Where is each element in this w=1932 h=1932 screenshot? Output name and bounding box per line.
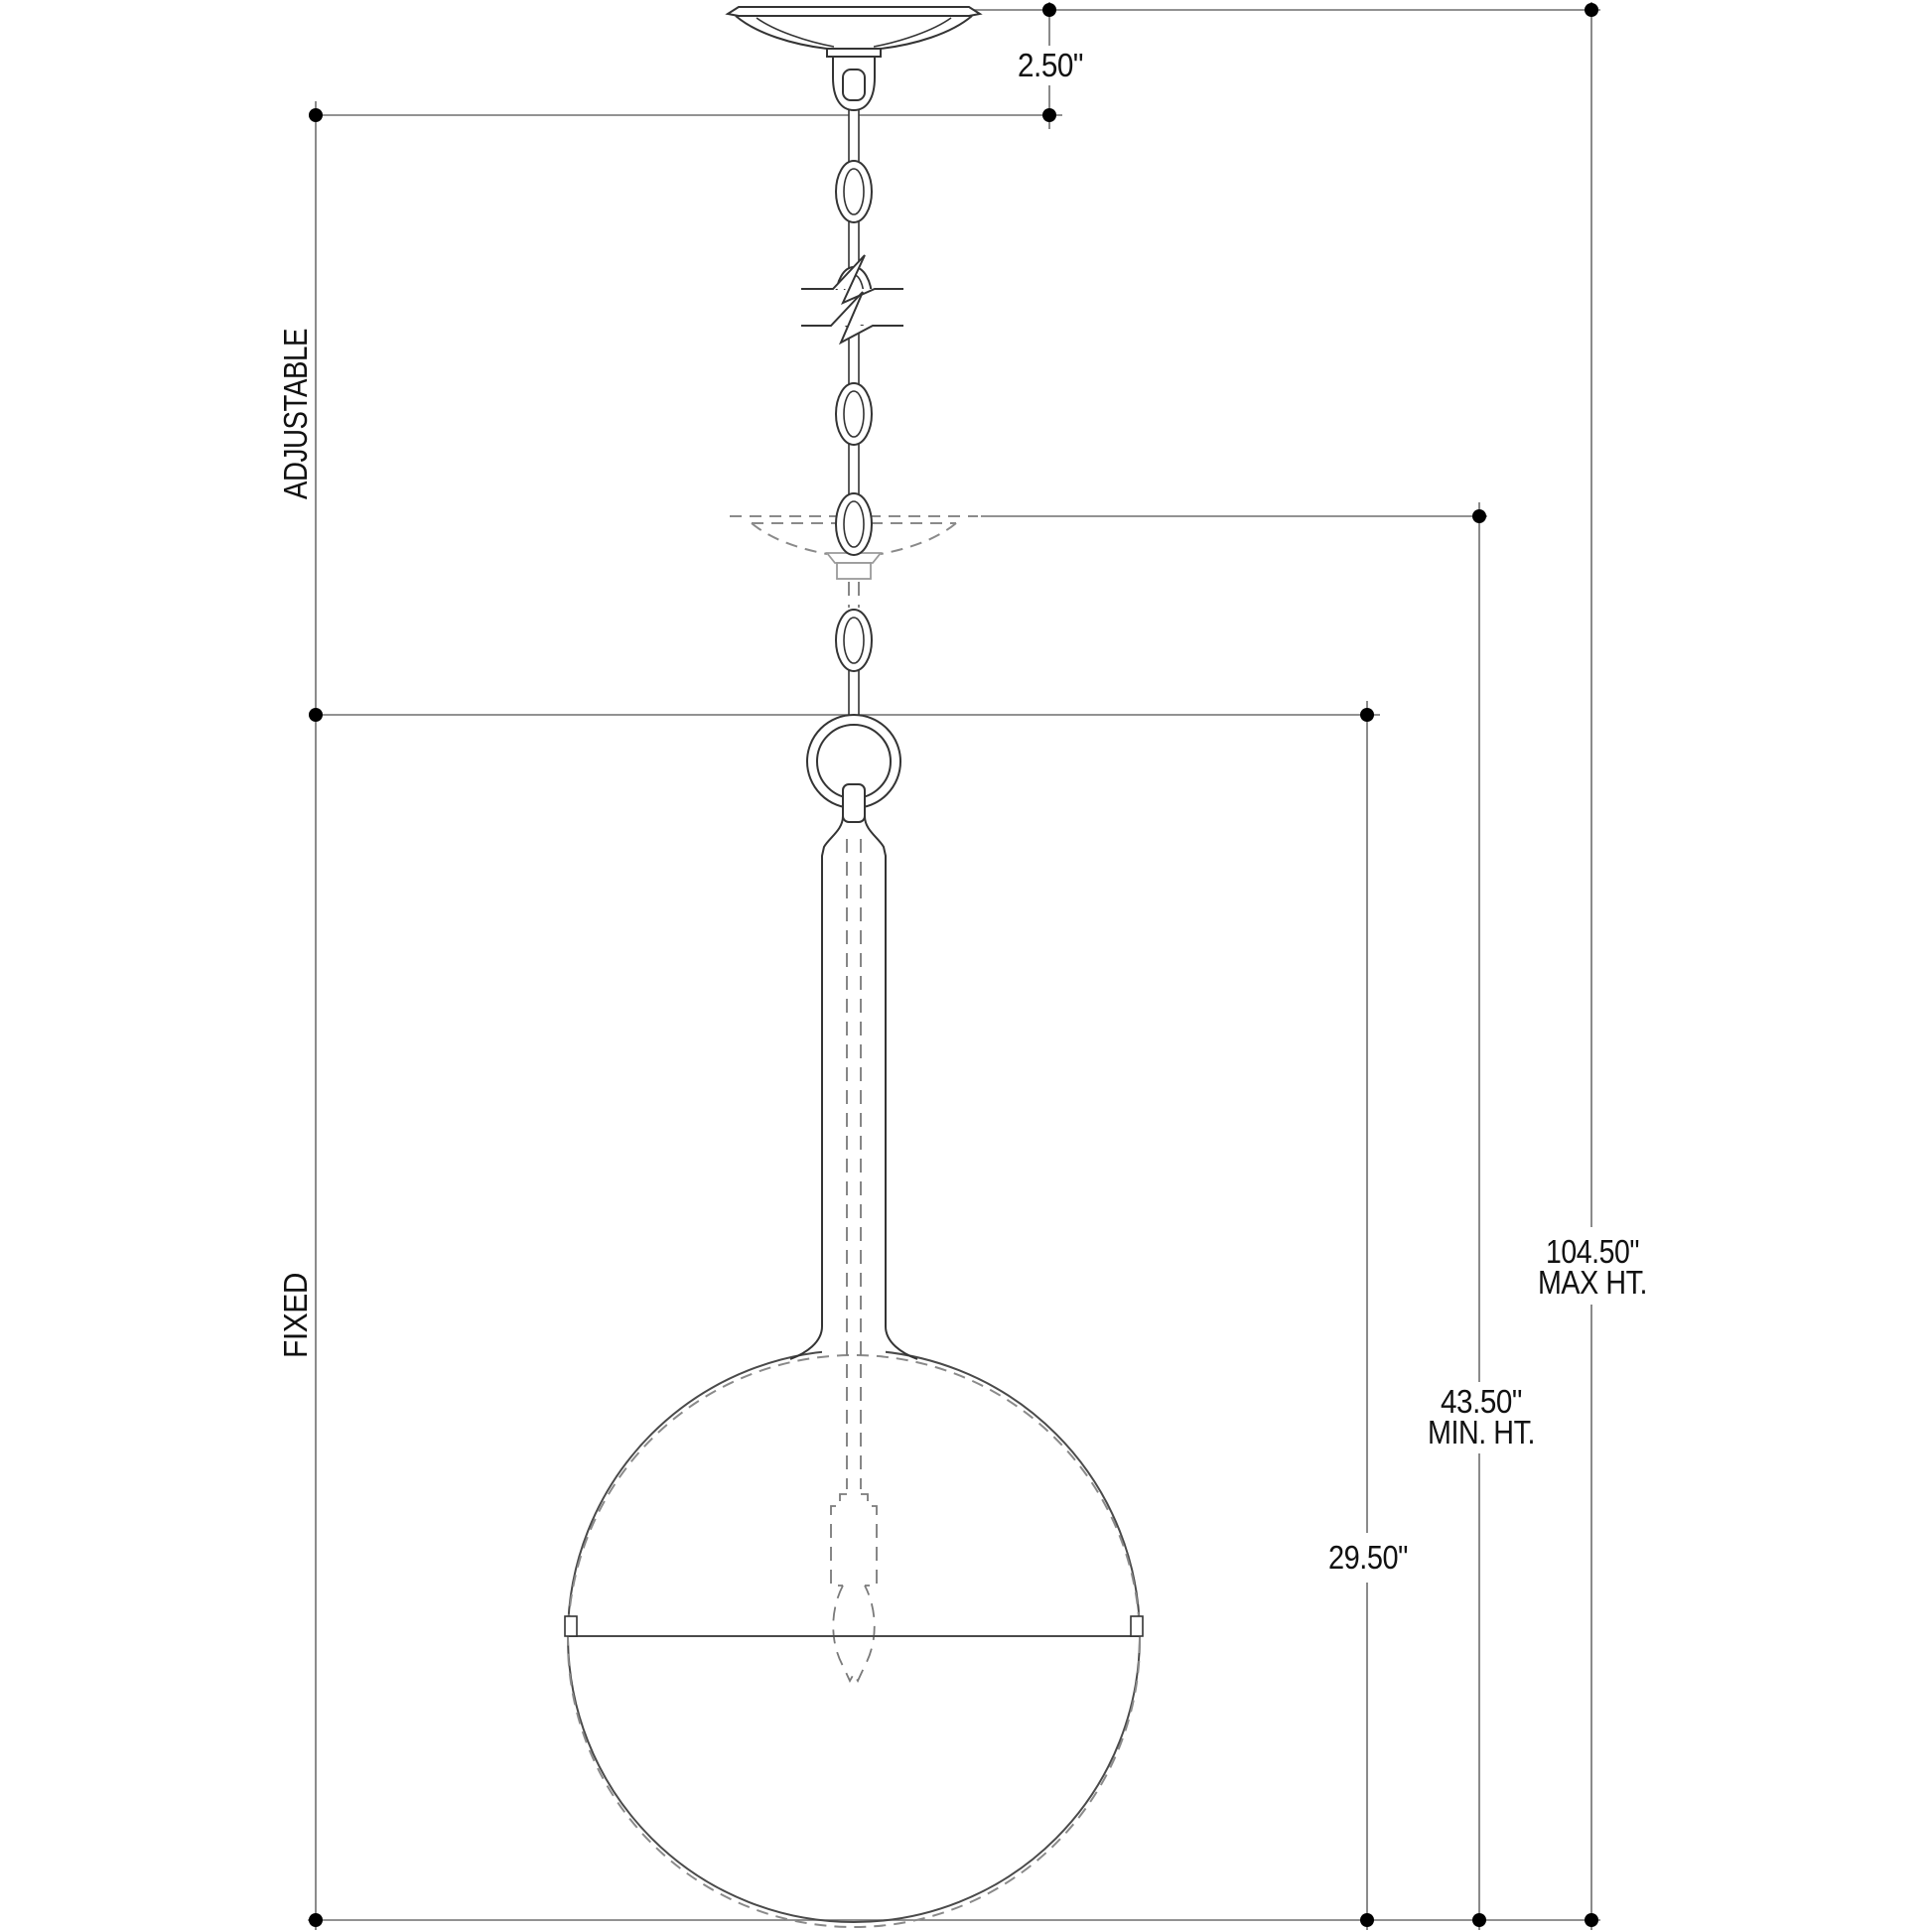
chain-break-symbol [801, 255, 903, 343]
band-notch-left [565, 1616, 577, 1636]
canopy-bell-left [736, 16, 827, 49]
canopy-neck [827, 49, 881, 57]
stem-neck [843, 784, 865, 822]
socket-outline-left [831, 1494, 847, 1586]
adjustable-label: ADJUSTABLE [277, 329, 314, 499]
chain-wire-3 [849, 334, 859, 390]
chain-link-5 [836, 610, 872, 671]
ghost-canopy-bell-right [881, 523, 956, 554]
ghost-collar-cup [837, 563, 871, 579]
min-height-suffix-label: MIN. HT. [1428, 1414, 1535, 1450]
dimension-labels: 2.50" ADJUSTABLE FIXED 29.50" 43.50" MIN… [277, 47, 1647, 1576]
fixed-label: FIXED [277, 1273, 314, 1358]
band-notch-right [1131, 1616, 1143, 1636]
canopy-loop [833, 57, 875, 110]
stem-body-mask [822, 842, 886, 1356]
chain-link-4 [836, 493, 872, 555]
pendant-dimension-diagram: 2.50" ADJUSTABLE FIXED 29.50" 43.50" MIN… [0, 0, 1932, 1932]
ceiling-canopy [728, 7, 980, 110]
chain-link-3 [836, 383, 872, 445]
chain-wire-5 [849, 669, 859, 717]
canopy-flare [728, 7, 980, 16]
drawing-sheet: 2.50" ADJUSTABLE FIXED 29.50" 43.50" MIN… [0, 0, 1932, 1932]
dimension-lines [308, 2, 1600, 1930]
dimension-dots [309, 3, 1598, 1927]
ghost-canopy-bell-left [752, 523, 827, 554]
chain-link-1 [836, 161, 872, 222]
chain-wire-4 [849, 443, 859, 500]
globe-band [565, 1616, 1143, 1636]
stem [790, 784, 917, 1359]
canopy-drop-label: 2.50" [1018, 47, 1083, 83]
body-height-label: 29.50" [1328, 1539, 1408, 1576]
chain [836, 99, 872, 717]
socket-outline-right [861, 1494, 877, 1586]
bulb-outline [833, 1586, 875, 1681]
max-height-suffix-label: MAX HT. [1538, 1264, 1647, 1301]
canopy-bell-right [881, 16, 972, 49]
